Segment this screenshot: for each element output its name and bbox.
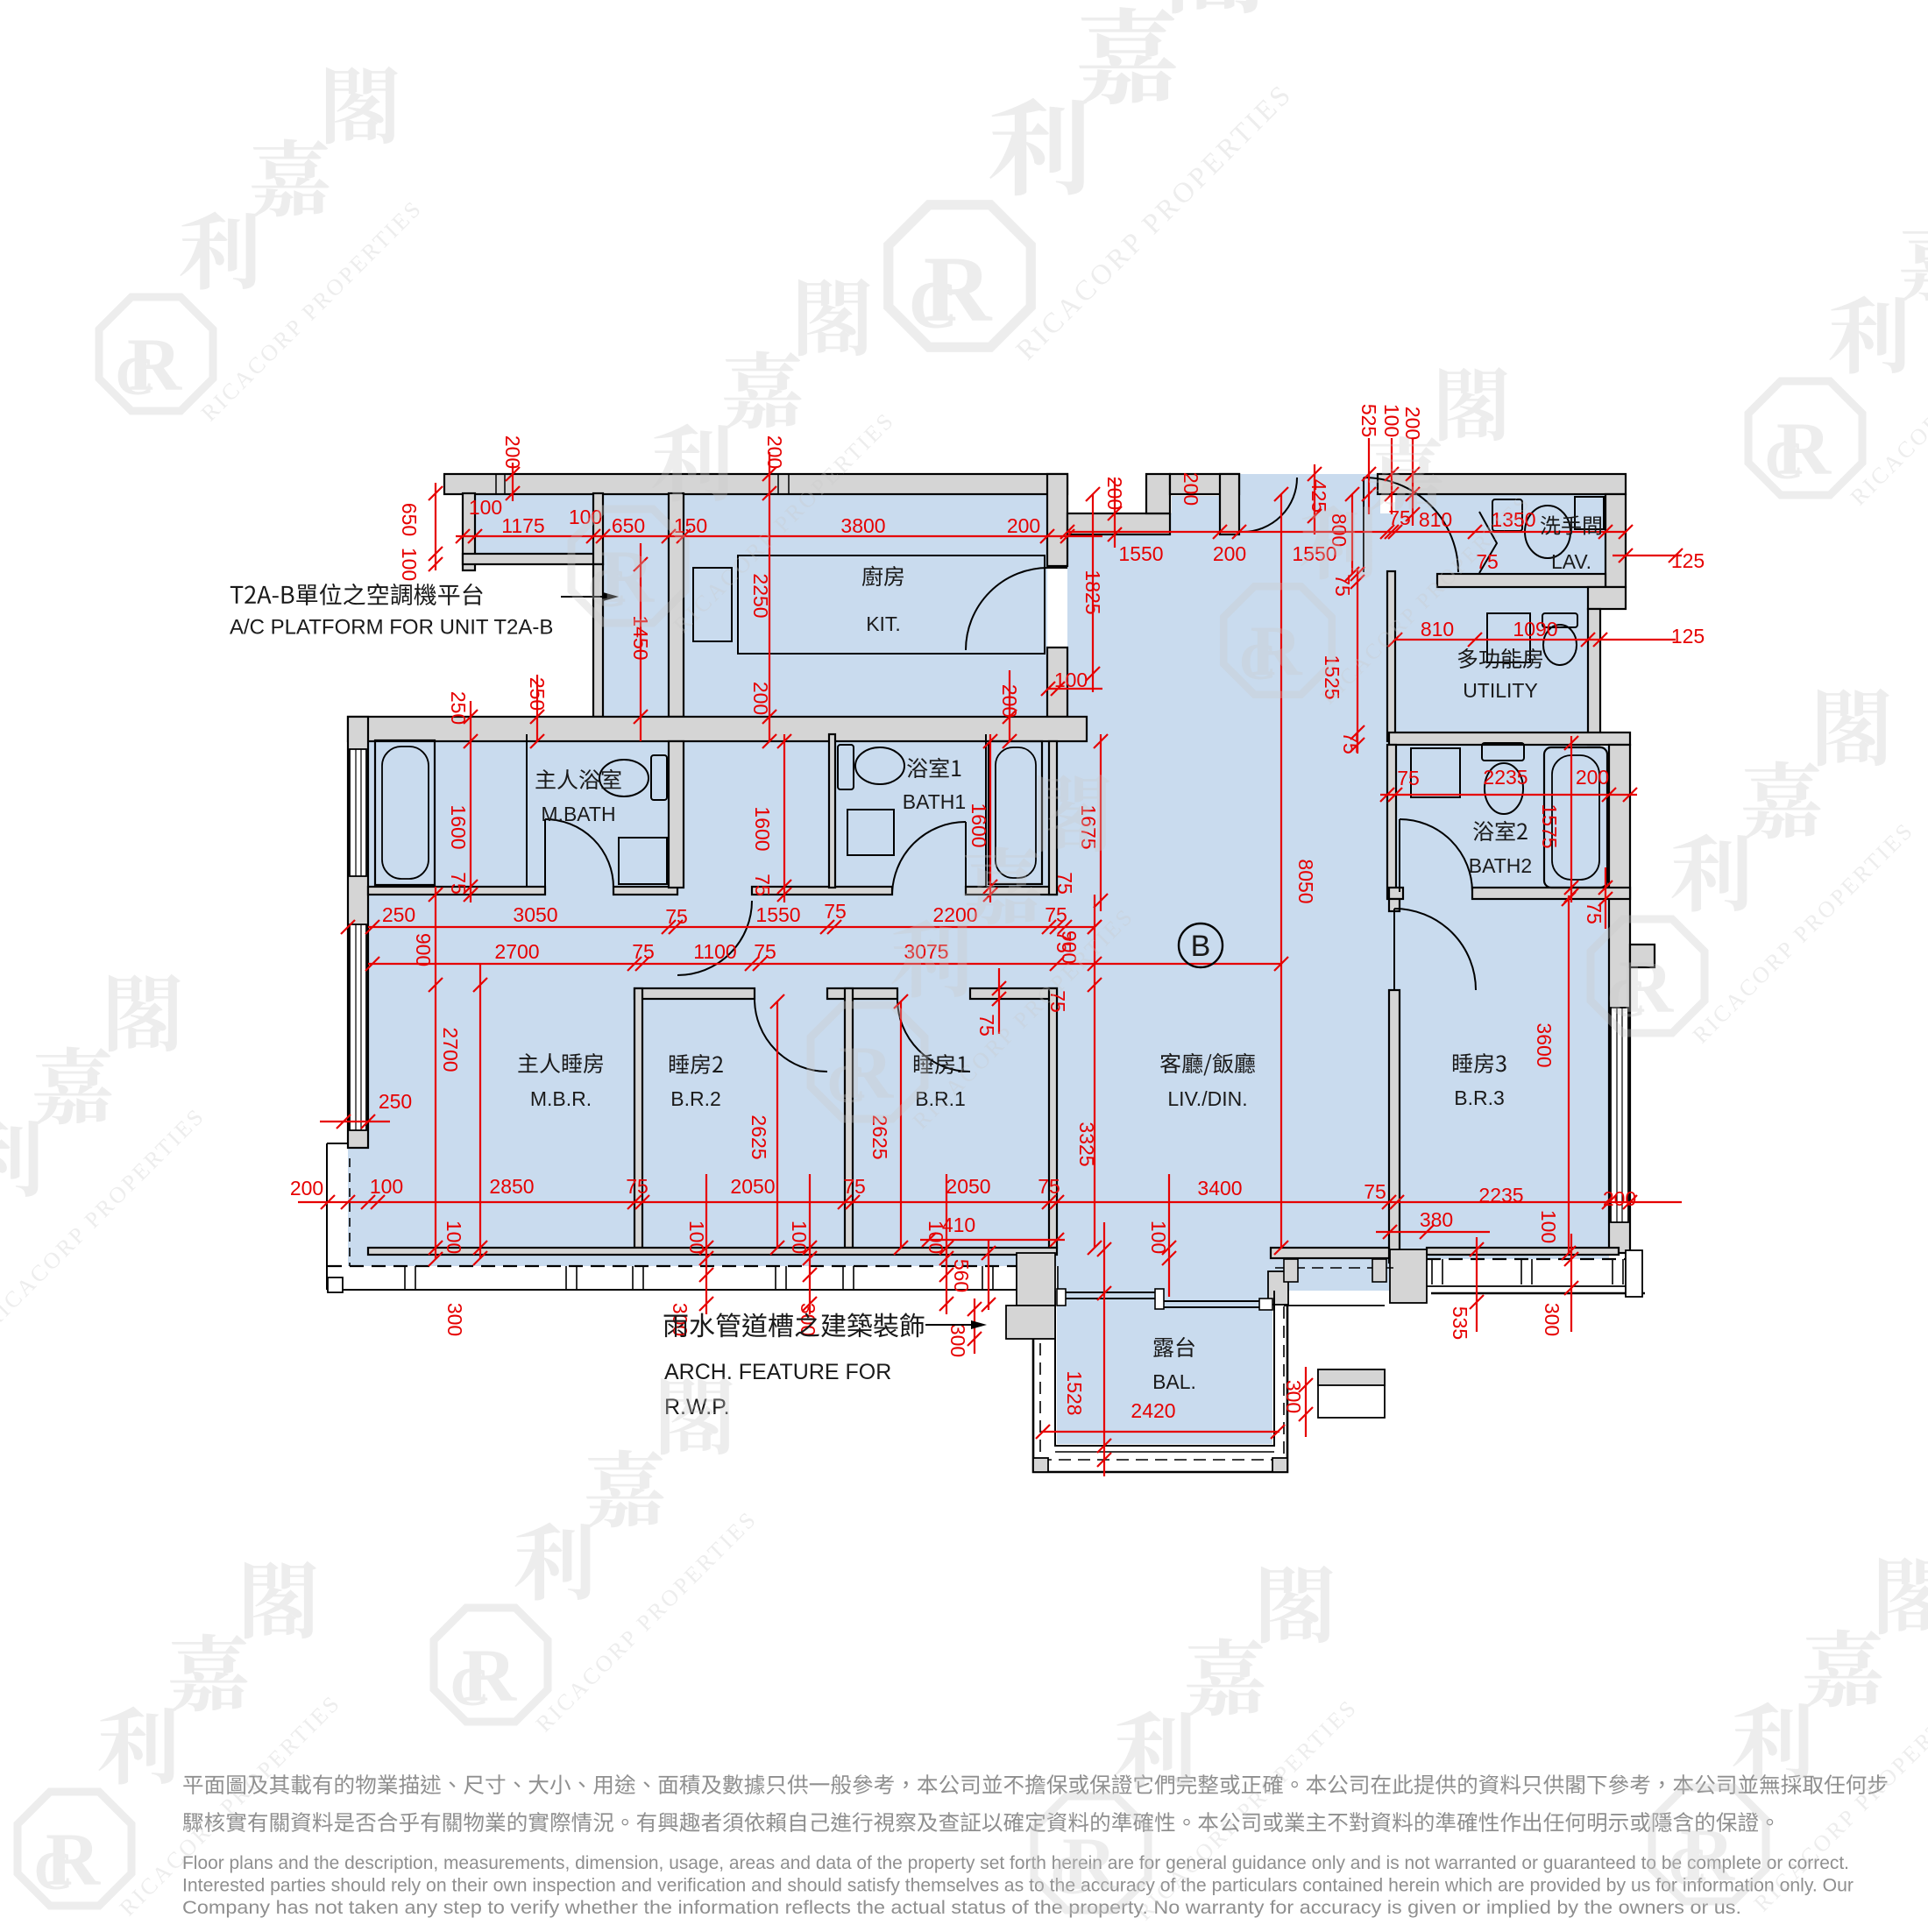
svg-text:2850: 2850: [489, 1175, 534, 1198]
svg-text:810: 810: [1421, 618, 1454, 640]
svg-text:100: 100: [398, 548, 421, 581]
svg-text:1175: 1175: [501, 514, 544, 537]
svg-text:BATH1: BATH1: [903, 790, 966, 813]
svg-text:1825: 1825: [1081, 570, 1104, 614]
svg-text:75: 75: [632, 940, 655, 963]
svg-text:100: 100: [685, 1221, 708, 1254]
svg-text:560: 560: [950, 1259, 973, 1292]
svg-text:B.R.3: B.R.3: [1454, 1086, 1505, 1109]
svg-text:3325: 3325: [1075, 1122, 1098, 1166]
svg-text:KIT.: KIT.: [866, 612, 901, 635]
svg-text:200: 200: [1007, 514, 1040, 537]
svg-text:2700: 2700: [494, 940, 539, 963]
svg-text:300: 300: [1282, 1380, 1305, 1413]
svg-text:75: 75: [626, 1175, 649, 1198]
svg-text:100: 100: [1380, 404, 1403, 437]
svg-text:100: 100: [1054, 669, 1088, 691]
svg-text:75: 75: [1053, 872, 1076, 895]
svg-text:75: 75: [1038, 1175, 1060, 1198]
svg-text:1600: 1600: [447, 804, 470, 849]
svg-text:2050: 2050: [730, 1175, 775, 1198]
svg-text:75: 75: [665, 905, 688, 928]
svg-text:650: 650: [398, 503, 421, 536]
svg-text:100: 100: [443, 1221, 465, 1254]
svg-text:BAL.: BAL.: [1152, 1370, 1196, 1393]
svg-text:8050: 8050: [1294, 859, 1317, 903]
svg-text:C: C: [588, 559, 627, 619]
svg-text:C: C: [909, 267, 958, 343]
svg-text:535: 535: [1449, 1306, 1471, 1340]
svg-text:1100: 1100: [693, 940, 736, 963]
svg-text:LIV./DIN.: LIV./DIN.: [1167, 1087, 1247, 1110]
svg-text:250: 250: [526, 677, 549, 711]
svg-text:100: 100: [370, 1175, 403, 1198]
svg-text:425: 425: [1308, 479, 1330, 513]
svg-text:200: 200: [1401, 407, 1424, 440]
svg-text:200: 200: [749, 682, 772, 715]
svg-text:R.W.P.: R.W.P.: [664, 1395, 730, 1419]
svg-text:100: 100: [1147, 1221, 1170, 1254]
svg-text:75: 75: [824, 900, 847, 923]
svg-text:75: 75: [754, 940, 776, 963]
svg-text:300: 300: [1541, 1303, 1563, 1336]
svg-text:1575: 1575: [1538, 803, 1561, 848]
svg-text:250: 250: [379, 1090, 412, 1113]
svg-text:2250: 2250: [749, 573, 772, 618]
svg-text:B: B: [1191, 930, 1211, 963]
svg-text:Interested parties should rely: Interested parties should rely on their …: [182, 1876, 1854, 1896]
svg-text:75: 75: [1331, 574, 1354, 597]
svg-text:2625: 2625: [748, 1115, 770, 1159]
svg-text:3050: 3050: [513, 903, 557, 926]
svg-text:250: 250: [382, 903, 415, 926]
svg-text:75: 75: [1583, 902, 1605, 924]
svg-text:200: 200: [1103, 477, 1126, 510]
svg-text:A/C PLATFORM FOR UNIT T2A-B: A/C PLATFORM FOR UNIT T2A-B: [230, 616, 553, 640]
svg-text:380: 380: [1420, 1208, 1453, 1231]
svg-text:200: 200: [1603, 1187, 1636, 1210]
svg-text:300: 300: [946, 1324, 969, 1357]
svg-text:LAV.: LAV.: [1551, 550, 1591, 573]
svg-text:C: C: [1669, 1837, 1708, 1897]
svg-text:2700: 2700: [439, 1027, 462, 1072]
svg-text:C: C: [34, 1842, 74, 1901]
svg-text:C: C: [1765, 431, 1804, 491]
svg-text:3800: 3800: [840, 514, 885, 537]
svg-text:M.BATH: M.BATH: [541, 803, 615, 825]
svg-text:2420: 2420: [1131, 1399, 1175, 1422]
svg-text:BATH2: BATH2: [1469, 854, 1532, 877]
svg-text:125: 125: [1671, 549, 1705, 572]
svg-text:200: 200: [763, 435, 786, 469]
svg-text:75: 75: [1364, 1180, 1386, 1203]
svg-text:75: 75: [1045, 903, 1067, 926]
svg-text:300: 300: [443, 1303, 466, 1336]
svg-text:M.B.R.: M.B.R.: [530, 1087, 592, 1110]
svg-text:B.R.2: B.R.2: [670, 1087, 721, 1110]
svg-text:C: C: [450, 1658, 490, 1717]
svg-text:3600: 3600: [1533, 1023, 1556, 1067]
svg-text:1550: 1550: [1118, 542, 1163, 565]
svg-text:2235: 2235: [1483, 766, 1528, 789]
svg-text:UTILITY: UTILITY: [1463, 679, 1538, 702]
svg-text:200: 200: [501, 435, 524, 469]
svg-text:1528: 1528: [1063, 1370, 1086, 1415]
svg-text:200: 200: [1576, 766, 1609, 789]
svg-text:125: 125: [1671, 625, 1705, 648]
svg-text:C: C: [1239, 633, 1277, 690]
svg-text:75: 75: [447, 872, 470, 895]
svg-text:1550: 1550: [755, 903, 800, 926]
svg-text:200: 200: [998, 684, 1021, 718]
svg-text:200: 200: [1213, 542, 1246, 565]
svg-text:100: 100: [469, 496, 502, 519]
svg-text:100: 100: [788, 1221, 811, 1254]
svg-text:C: C: [827, 1055, 867, 1115]
svg-text:810: 810: [1419, 508, 1452, 531]
svg-text:Floor plans and the descriptio: Floor plans and the description, measure…: [182, 1853, 1849, 1873]
svg-text:1600: 1600: [751, 806, 774, 851]
svg-text:C: C: [116, 347, 155, 407]
svg-text:C: C: [1051, 1846, 1090, 1906]
svg-text:100: 100: [1537, 1210, 1560, 1243]
svg-text:1090: 1090: [1513, 618, 1557, 640]
svg-text:C: C: [1607, 969, 1647, 1029]
svg-text:100: 100: [925, 1221, 947, 1254]
svg-text:75: 75: [751, 874, 774, 896]
svg-text:250: 250: [447, 691, 470, 725]
svg-text:900: 900: [412, 933, 435, 966]
svg-text:1600: 1600: [968, 803, 990, 847]
svg-text:2050: 2050: [946, 1175, 990, 1198]
svg-text:200: 200: [1180, 472, 1202, 506]
svg-text:2235: 2235: [1478, 1184, 1523, 1207]
svg-text:Company has not taken any step: Company has not taken any step to verify…: [182, 1898, 1741, 1918]
svg-text:200: 200: [290, 1177, 323, 1200]
svg-text:2200: 2200: [932, 903, 977, 926]
svg-text:75: 75: [1339, 732, 1362, 754]
svg-text:75: 75: [1397, 767, 1420, 789]
svg-text:75: 75: [843, 1175, 866, 1198]
svg-text:525: 525: [1357, 404, 1380, 437]
svg-text:75: 75: [1388, 506, 1411, 529]
svg-text:3400: 3400: [1197, 1177, 1242, 1200]
